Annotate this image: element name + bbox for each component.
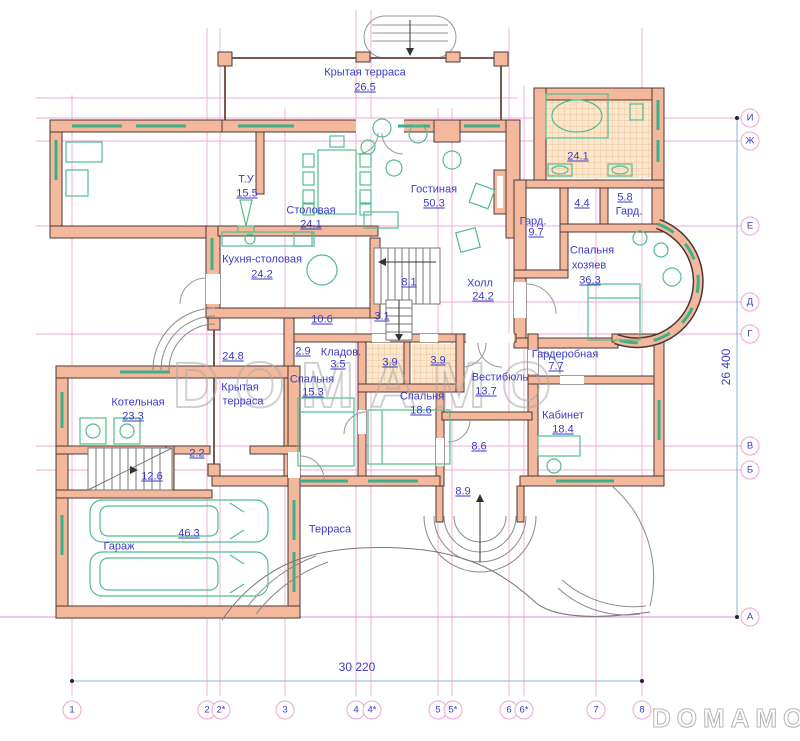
room-label-terrace-left-1: Крытая [221, 383, 258, 394]
room-area-c22: 2.2 [189, 449, 204, 460]
room-label-master-2: хозяев [572, 261, 606, 272]
room-label-hall: Холл [467, 279, 493, 290]
room-area-corr86: 8.6 [471, 442, 486, 453]
room-area-master: 36.3 [579, 276, 600, 287]
room-label-terrace-left-2: терраса [222, 397, 263, 408]
axis-bubble-g: Г [741, 325, 760, 344]
room-area-office: 18.4 [552, 425, 573, 436]
room-area-terrace-left: 24.8 [222, 352, 243, 363]
bay-window [616, 224, 698, 343]
room-label-storage: Кладов. [321, 348, 361, 359]
room-label-kitchen: Кухня-столовая [222, 255, 302, 266]
room-label-vestibule: Вестибюль [472, 373, 529, 384]
north-entry-steps [364, 16, 456, 58]
room-area-hall: 24.2 [472, 292, 493, 303]
dimension-vertical: 26 400 [719, 349, 733, 386]
axis-bubble-e: Е [741, 217, 760, 236]
room-label-master-1: Спальня [570, 246, 614, 257]
room-label-ward58: Гард. [616, 207, 643, 218]
room-label-office: Кабинет [542, 411, 584, 422]
axis-bubble-3: 3 [276, 701, 295, 720]
room-area-porch89: 8.9 [455, 487, 470, 498]
room-label-terrace-south: Терраса [309, 525, 351, 536]
room-area-dining: 24.1 [300, 220, 321, 231]
axis-bubble-d: Д [741, 293, 760, 312]
room-area-c29: 2.9 [295, 347, 310, 358]
room-area-boiler: 23.3 [122, 412, 143, 423]
axis-bubble-zh: Ж [741, 132, 760, 151]
axis-bubble-5s: 5* [444, 701, 463, 720]
axis-bubble-v: В [741, 437, 760, 456]
axis-bubble-b: Б [741, 461, 760, 480]
room-label-boiler: Котельная [111, 398, 164, 409]
room-area-ward97: 9.7 [528, 228, 543, 239]
room-label-wardrobe: Гардеробная [532, 350, 599, 361]
room-label-bed2: Спальня [400, 392, 444, 403]
room-label-living: Гостиная [411, 185, 457, 196]
room-area-bath-a: 3.9 [382, 358, 397, 369]
floor-plan-page: Крытая терраса 26.5 Т.У 15.5 Столовая 24… [0, 0, 800, 741]
room-area-ward58: 5.8 [617, 193, 632, 204]
room-area-stair126: 12.6 [141, 472, 162, 483]
axis-bubble-a: А [741, 608, 760, 627]
room-area-bed2: 18.6 [410, 406, 431, 417]
room-area-bath-b: 3.9 [430, 356, 445, 367]
room-area-bed1: 15.3 [302, 388, 323, 399]
room-label-garage: Гараж [103, 542, 134, 553]
room-area-wardrobe: 7.7 [548, 362, 563, 373]
axis-bubble-1: 1 [63, 701, 82, 720]
axis-bubble-8: 8 [633, 701, 652, 720]
axis-bubble-2s: 2* [212, 701, 231, 720]
room-area-living: 50.3 [423, 199, 444, 210]
room-area-garage: 46.3 [178, 529, 199, 540]
room-area-terrace-top: 26.5 [354, 83, 375, 94]
axis-bubble-4s: 4* [363, 701, 382, 720]
room-label-bed1: Спальня [290, 375, 334, 386]
room-label-tu: Т.У [238, 175, 254, 186]
axis-bubble-7: 7 [587, 701, 606, 720]
room-area-stair31: 3.1 [374, 312, 389, 323]
watermark-corner: DOMAMO [652, 703, 800, 734]
room-area-wc44: 4.4 [574, 199, 589, 210]
room-area-kitchen: 24.2 [251, 270, 272, 281]
room-area-storage: 3.5 [330, 360, 345, 371]
axis-bubble-i: И [741, 109, 760, 128]
axis-bubble-6s: 6* [515, 701, 534, 720]
room-label-dining: Столовая [286, 206, 335, 217]
room-area-corr106: 10.6 [311, 315, 332, 326]
room-area-stair81: 8.1 [401, 278, 416, 289]
room-label-terrace-top: Крытая терраса [324, 68, 405, 79]
dimension-horizontal: 30 220 [339, 660, 376, 674]
room-area-master-bath: 24.1 [567, 152, 588, 163]
room-area-vestibule: 13.7 [475, 387, 496, 398]
room-area-tu: 15.5 [236, 189, 257, 200]
